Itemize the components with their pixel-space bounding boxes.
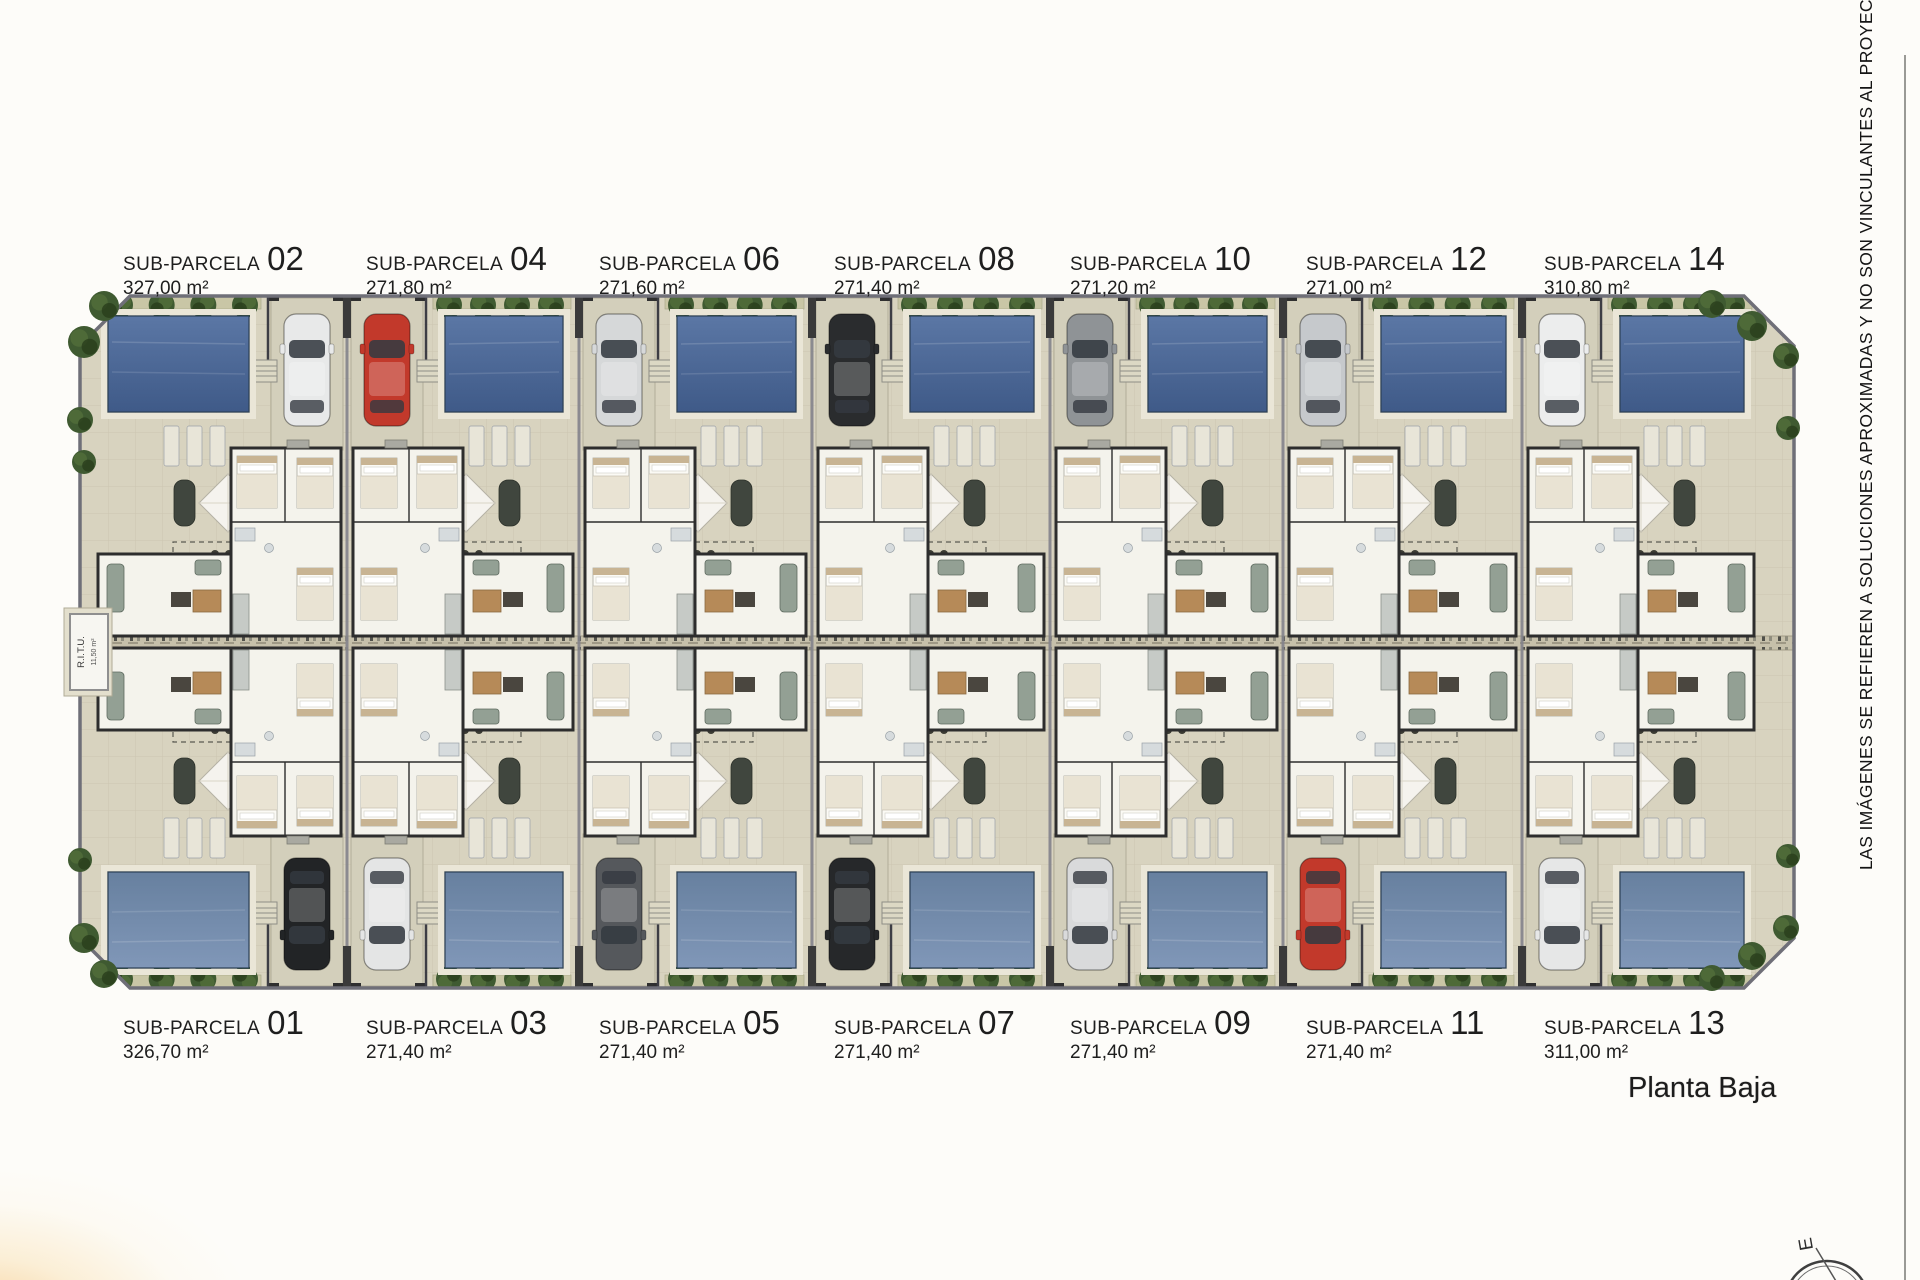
garden-lounger [731,480,752,526]
dining-table-icon [1409,590,1437,612]
dining-table-icon [1648,672,1676,694]
sofa-icon [780,564,797,612]
toilet-icon [421,732,430,741]
porch-step [617,440,639,448]
car-icon [825,858,879,970]
dining-table-icon [473,590,501,612]
bed-icon [1592,776,1632,828]
entry-stairs [1592,902,1616,924]
entry-stairs [649,902,673,924]
bathtub-icon [235,743,255,756]
pool [1144,312,1271,416]
parcel-number: 08 [978,240,1015,277]
sun-lounger [1218,426,1233,466]
sun-lounger [1690,818,1705,858]
bed-icon [1353,456,1393,508]
bathtub-icon [904,743,924,756]
bed-icon [593,568,629,620]
parcel-number: 12 [1450,240,1487,277]
pool [673,312,800,416]
bed-icon [1064,776,1100,826]
tv-unit-icon [1206,592,1226,607]
bed-icon [1353,776,1393,828]
sun-lounger [187,818,202,858]
porch-step [287,440,309,448]
toilet-icon [886,544,895,553]
bed-icon [1536,568,1572,620]
sun-lounger [492,426,507,466]
kitchen-counter [910,594,926,634]
parcel-area: 271,60 m² [599,279,814,298]
sofa-icon [1490,564,1507,612]
parcel-label-prefix: SUB-PARCELA [366,1018,503,1039]
armchair-icon [1409,560,1435,575]
porch-step [1088,440,1110,448]
dining-table-icon [1176,672,1204,694]
garden-lounger [731,758,752,804]
sun-lounger [1644,426,1659,466]
tree-icon [67,407,93,433]
bed-icon [593,458,629,508]
tree-icon [90,960,118,988]
parcel-label-11: SUB-PARCELA11 271,40 m² [1306,1006,1521,1062]
dining-table-icon [1176,590,1204,612]
parcel-label-prefix: SUB-PARCELA [1070,1018,1207,1039]
bed-icon [593,664,629,716]
tv-unit-icon [171,677,191,692]
armchair-icon [1648,709,1674,724]
bed-icon [1297,458,1333,508]
tv-unit-icon [1678,677,1698,692]
porch-step [385,440,407,448]
tree-icon [72,450,96,474]
garden-lounger [174,480,195,526]
floor-title: Planta Baja [1628,1072,1776,1105]
car-icon [280,314,334,426]
parcel-label-08: SUB-PARCELA08 271,40 m² [834,242,1049,298]
bed-icon [649,776,689,828]
sofa-icon [1251,672,1268,720]
sun-lounger [187,426,202,466]
car-icon [1063,314,1117,426]
parcel-area: 271,40 m² [599,1043,814,1062]
bathtub-icon [1142,743,1162,756]
toilet-icon [421,544,430,553]
parcel-area: 271,40 m² [1306,1043,1521,1062]
kitchen-counter [233,650,249,690]
garden-lounger [1435,480,1456,526]
car-icon [1063,858,1117,970]
parcel-label-prefix: SUB-PARCELA [1070,254,1207,275]
sun-lounger [515,818,530,858]
sun-lounger [210,426,225,466]
technical-room-label: R.I.T.U. [76,636,87,668]
parcel-area: 271,00 m² [1306,279,1521,298]
parcel-number: 06 [743,240,780,277]
bathtub-icon [1375,528,1395,541]
bed-icon [417,776,457,828]
sun-lounger [1451,426,1466,466]
sun-lounger [1644,818,1659,858]
kitchen-counter [677,650,693,690]
sun-lounger [1218,818,1233,858]
tv-unit-icon [503,677,523,692]
parcel-label-prefix: SUB-PARCELA [1306,254,1443,275]
dining-table-icon [473,672,501,694]
entry-stairs [417,360,441,382]
bathtub-icon [904,528,924,541]
armchair-icon [938,560,964,575]
dining-table-icon [1648,590,1676,612]
sofa-icon [547,564,564,612]
sun-lounger [492,818,507,858]
bed-icon [1120,776,1160,828]
armchair-icon [195,560,221,575]
tv-unit-icon [968,677,988,692]
toilet-icon [1596,732,1605,741]
parcel-area: 271,40 m² [366,1043,581,1062]
pool [673,868,800,972]
parcel-label-prefix: SUB-PARCELA [123,1018,260,1039]
bed-icon [1536,664,1572,716]
garden-lounger [1202,480,1223,526]
tv-unit-icon [735,677,755,692]
porch-step [385,836,407,844]
car-icon [1296,858,1350,970]
bed-icon [237,776,277,828]
bed-icon [1536,458,1572,508]
bed-icon [826,458,862,508]
armchair-icon [1176,709,1202,724]
bathtub-icon [671,528,691,541]
bed-icon [361,776,397,826]
tv-unit-icon [171,592,191,607]
porch-step [850,440,872,448]
pool [104,868,253,972]
bed-icon [417,456,457,508]
kitchen-counter [1381,650,1397,690]
toilet-icon [265,732,274,741]
parcel-label-prefix: SUB-PARCELA [834,254,971,275]
kitchen-counter [677,594,693,634]
bed-icon [649,456,689,508]
sun-lounger [469,426,484,466]
toilet-icon [265,544,274,553]
tv-unit-icon [503,592,523,607]
garden-lounger [174,758,195,804]
parcel-number: 14 [1688,240,1725,277]
dining-table-icon [938,672,966,694]
entry-stairs [1592,360,1616,382]
armchair-icon [473,560,499,575]
sun-lounger [469,818,484,858]
tree-icon [89,291,119,321]
parcel-label-13: SUB-PARCELA13 311,00 m² [1544,1006,1759,1062]
sofa-icon [107,564,124,612]
parcel-label-prefix: SUB-PARCELA [1544,1018,1681,1039]
compass-icon: E [1785,1236,1869,1280]
parcel-label-07: SUB-PARCELA07 271,40 m² [834,1006,1049,1062]
bed-icon [1297,664,1333,716]
toilet-icon [1596,544,1605,553]
sun-lounger [934,818,949,858]
bathtub-icon [439,743,459,756]
pool [1144,868,1271,972]
sofa-icon [1490,672,1507,720]
sofa-icon [1018,564,1035,612]
toilet-icon [653,732,662,741]
armchair-icon [705,560,731,575]
garden-lounger [964,758,985,804]
tree-icon [1738,942,1766,970]
sun-lounger [1690,426,1705,466]
bed-icon [1592,456,1632,508]
sun-lounger [980,426,995,466]
porch-step [1560,440,1582,448]
sun-lounger [1451,818,1466,858]
parcel-number: 03 [510,1004,547,1041]
car-icon [360,314,414,426]
tv-unit-icon [1439,592,1459,607]
parcel-label-02: SUB-PARCELA02 327,00 m² [123,242,338,298]
bed-icon [361,568,397,620]
armchair-icon [473,709,499,724]
sun-lounger [724,426,739,466]
sun-lounger [1405,818,1420,858]
tree-icon [69,923,99,953]
bed-icon [1064,458,1100,508]
toilet-icon [1124,544,1133,553]
parcel-number: 07 [978,1004,1015,1041]
parcel-number: 02 [267,240,304,277]
tv-unit-icon [1206,677,1226,692]
compass-east-label: E [1795,1236,1818,1252]
garden-lounger [499,758,520,804]
sun-lounger [724,818,739,858]
dining-table-icon [705,590,733,612]
technical-room-area: 11,50 m² [91,638,98,666]
entry-stairs [882,360,906,382]
pool [906,312,1038,416]
parcel-area: 271,40 m² [834,279,1049,298]
car-icon [1535,858,1589,970]
tree-icon [1773,343,1799,369]
garden-lounger [1674,480,1695,526]
parcel-label-14: SUB-PARCELA14 310,80 m² [1544,242,1759,298]
bed-icon [237,456,277,508]
bathtub-icon [671,743,691,756]
tv-unit-icon [968,592,988,607]
parcel-number: 10 [1214,240,1251,277]
parcel-label-06: SUB-PARCELA06 271,60 m² [599,242,814,298]
bed-icon [826,776,862,826]
sun-lounger [701,818,716,858]
armchair-icon [195,709,221,724]
porch-step [850,836,872,844]
parcel-label-prefix: SUB-PARCELA [599,1018,736,1039]
car-icon [592,314,646,426]
sun-lounger [1195,426,1210,466]
car-icon [360,858,414,970]
entry-stairs [882,902,906,924]
sun-lounger [747,818,762,858]
parcel-label-prefix: SUB-PARCELA [1544,254,1681,275]
kitchen-counter [1381,594,1397,634]
pool [104,312,253,416]
parcel-label-03: SUB-PARCELA03 271,40 m² [366,1006,581,1062]
porch-step [1560,836,1582,844]
sheet-edge-line [1904,55,1906,1280]
porch-step [1321,836,1343,844]
parcel-area: 271,40 m² [834,1043,1049,1062]
kitchen-counter [1620,594,1636,634]
entry-stairs [1353,902,1377,924]
sofa-icon [1018,672,1035,720]
sun-lounger [1428,426,1443,466]
porch-step [617,836,639,844]
tree-icon [1776,844,1800,868]
pool [1377,868,1510,972]
armchair-icon [1176,560,1202,575]
dining-table-icon [938,590,966,612]
sun-lounger [957,426,972,466]
parcel-label-10: SUB-PARCELA10 271,20 m² [1070,242,1285,298]
bathtub-icon [1614,528,1634,541]
bed-icon [826,568,862,620]
parcel-label-prefix: SUB-PARCELA [834,1018,971,1039]
bed-icon [297,458,333,508]
technical-room: R.I.T.U. 11,50 m² [64,608,112,696]
pool [1377,312,1510,416]
bed-icon [1297,568,1333,620]
bathtub-icon [1142,528,1162,541]
sofa-icon [547,672,564,720]
bed-icon [297,776,333,826]
dining-table-icon [193,590,221,612]
parcel-label-09: SUB-PARCELA09 271,40 m² [1070,1006,1285,1062]
pool [1616,312,1748,416]
sun-lounger [747,426,762,466]
kitchen-counter [1148,650,1164,690]
sun-lounger [1172,426,1187,466]
kitchen-counter [445,650,461,690]
entry-stairs [1120,902,1144,924]
car-icon [592,858,646,970]
bed-icon [593,776,629,826]
sun-lounger [1405,426,1420,466]
pool [441,868,567,972]
entry-stairs [253,902,277,924]
toilet-icon [1124,732,1133,741]
garden-lounger [964,480,985,526]
bed-icon [1536,776,1572,826]
sun-lounger [210,818,225,858]
bed-icon [882,776,922,828]
parcel-label-prefix: SUB-PARCELA [1306,1018,1443,1039]
sun-lounger [1667,426,1682,466]
sun-lounger [164,426,179,466]
tree-icon [1773,915,1799,941]
dining-table-icon [193,672,221,694]
dining-table-icon [705,672,733,694]
kitchen-counter [445,594,461,634]
garden-lounger [1674,758,1695,804]
parcel-label-prefix: SUB-PARCELA [123,254,260,275]
tree-icon [1737,311,1767,341]
garden-lounger [1435,758,1456,804]
parcel-area: 271,80 m² [366,279,581,298]
entry-stairs [417,902,441,924]
parcel-number: 04 [510,240,547,277]
porch-step [287,836,309,844]
garden-lounger [499,480,520,526]
sun-lounger [1428,818,1443,858]
armchair-icon [1648,560,1674,575]
tv-unit-icon [1439,677,1459,692]
pool [441,312,567,416]
armchair-icon [705,709,731,724]
parcel-number: 13 [1688,1004,1725,1041]
entry-stairs [649,360,673,382]
sofa-icon [1728,564,1745,612]
tree-icon [68,326,100,358]
bed-icon [361,664,397,716]
car-icon [1535,314,1589,426]
parcel-number: 01 [267,1004,304,1041]
bathtub-icon [1375,743,1395,756]
bed-icon [1297,776,1333,826]
porch-step [1321,440,1343,448]
dining-table-icon [1409,672,1437,694]
tv-unit-icon [735,592,755,607]
parcel-number: 09 [1214,1004,1251,1041]
bed-icon [826,664,862,716]
kitchen-counter [1620,650,1636,690]
sun-lounger [1667,818,1682,858]
sun-lounger [934,426,949,466]
bed-icon [297,664,333,716]
sofa-icon [1251,564,1268,612]
parcel-number: 11 [1450,1004,1484,1041]
armchair-icon [938,709,964,724]
sun-lounger [164,818,179,858]
toilet-icon [653,544,662,553]
sun-lounger [701,426,716,466]
kitchen-counter [233,594,249,634]
tv-unit-icon [1678,592,1698,607]
sun-lounger [980,818,995,858]
pool [1616,868,1748,972]
parcel-area: 310,80 m² [1544,279,1759,298]
sheet: R.I.T.U. 11,50 m² E SUB-PARCELA02 327,00… [0,0,1920,1280]
parcel-area: 271,40 m² [1070,1043,1285,1062]
entry-stairs [1120,360,1144,382]
parcel-area: 311,00 m² [1544,1043,1759,1062]
armchair-icon [1409,709,1435,724]
parcel-area: 326,70 m² [123,1043,338,1062]
bathtub-icon [235,528,255,541]
parcel-label-04: SUB-PARCELA04 271,80 m² [366,242,581,298]
car-icon [280,858,334,970]
entry-stairs [1353,360,1377,382]
disclaimer-text: LAS IMÁGENES SE REFIEREN A SOLUCIONES AP… [1856,0,1892,870]
toilet-icon [886,732,895,741]
bathtub-icon [439,528,459,541]
sun-lounger [515,426,530,466]
parcel-label-01: SUB-PARCELA01 326,70 m² [123,1006,338,1062]
bed-icon [1064,664,1100,716]
parcel-label-05: SUB-PARCELA05 271,40 m² [599,1006,814,1062]
